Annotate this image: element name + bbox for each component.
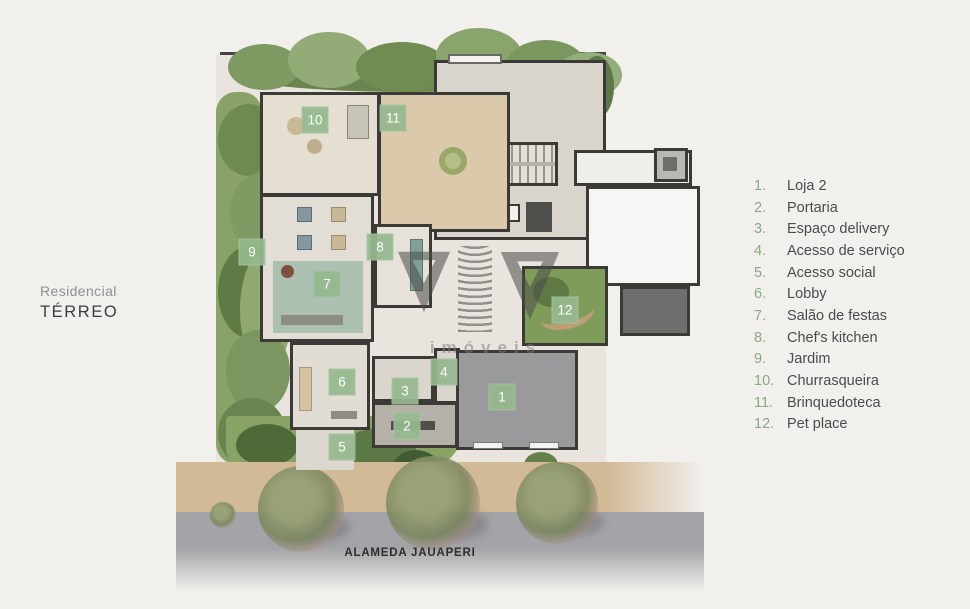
legend-number: 8. <box>754 328 779 350</box>
legend-item-2: 2.Portaria <box>754 198 905 220</box>
legend-label: Chef's kitchen <box>779 328 878 350</box>
legend-label: Churrasqueira <box>779 371 879 393</box>
legend-item-6: 6.Lobby <box>754 284 905 306</box>
watermark-stripe-mark <box>458 246 492 332</box>
elevator-right <box>654 148 688 182</box>
legend-label: Brinquedoteca <box>779 393 881 415</box>
plan-badge-11: 11 <box>380 105 407 132</box>
legend-label: Jardim <box>779 349 831 371</box>
legend-label: Loja 2 <box>779 176 827 198</box>
legend-label: Portaria <box>779 198 838 220</box>
legend-item-12: 12.Pet place <box>754 414 905 436</box>
legend-number: 12. <box>754 414 779 436</box>
legend-item-11: 11.Brinquedoteca <box>754 393 905 415</box>
plant-pot <box>281 265 294 278</box>
street-tree <box>516 462 598 544</box>
plan-badge-3: 3 <box>392 378 419 405</box>
legend-label: Lobby <box>779 284 827 306</box>
legend-number: 10. <box>754 371 779 393</box>
plan-badge-9: 9 <box>239 239 266 266</box>
legend-item-5: 5.Acesso social <box>754 263 905 285</box>
legend-label: Pet place <box>779 414 847 436</box>
legend-number: 11. <box>754 393 779 415</box>
grill-counter <box>347 105 369 139</box>
sofa <box>281 315 343 325</box>
plan-title: Residencial TÉRREO <box>40 283 118 322</box>
plan-badge-1: 1 <box>489 384 516 411</box>
storefront-door <box>529 442 559 449</box>
legend-number: 2. <box>754 198 779 220</box>
street-name-label: ALAMEDA JAUAPERI <box>295 547 525 559</box>
plan-badge-10: 10 <box>302 107 329 134</box>
sofa <box>299 367 312 411</box>
legend-number: 5. <box>754 263 779 285</box>
furniture-table <box>331 235 346 250</box>
furniture-table <box>297 207 312 222</box>
legend-label: Espaço delivery <box>779 219 889 241</box>
furniture-table <box>297 235 312 250</box>
room-dark-gray <box>620 286 690 336</box>
storefront-door <box>473 442 503 449</box>
legend-number: 4. <box>754 241 779 263</box>
vegetation-blob <box>236 424 298 466</box>
watermark-logo: imóveis <box>398 242 574 362</box>
legend-number: 6. <box>754 284 779 306</box>
street-tree <box>386 456 480 550</box>
watermark-letter-m-left <box>398 250 450 316</box>
plan-badge-2: 2 <box>394 413 421 440</box>
legend-item-1: 1.Loja 2 <box>754 176 905 198</box>
plan-badge-8: 8 <box>367 234 394 261</box>
room-loja-2 <box>456 350 578 450</box>
legend-item-9: 9.Jardim <box>754 349 905 371</box>
legend-label: Acesso social <box>779 263 876 285</box>
legend-number: 7. <box>754 306 779 328</box>
legend-number: 9. <box>754 349 779 371</box>
plan-badge-7: 7 <box>314 271 341 298</box>
round-rug-inner <box>445 153 461 169</box>
legend-item-3: 3.Espaço delivery <box>754 219 905 241</box>
plan-badge-4: 4 <box>431 359 458 386</box>
plan-badge-12: 12 <box>552 297 579 324</box>
furniture-table <box>331 207 346 222</box>
floorplan-marketing-image: { "title": {"line1": "Residencial", "lin… <box>0 0 970 609</box>
title-residencial: Residencial <box>40 283 118 299</box>
reception-bench <box>331 411 357 419</box>
elevator-cab <box>663 157 677 171</box>
legend-number: 1. <box>754 176 779 198</box>
title-terreo: TÉRREO <box>40 303 118 322</box>
elevator-shaft <box>526 202 552 232</box>
furniture-table <box>307 139 322 154</box>
legend-item-7: 7.Salão de festas <box>754 306 905 328</box>
legend-label: Acesso de serviço <box>779 241 905 263</box>
legend-item-4: 4.Acesso de serviço <box>754 241 905 263</box>
plan-badge-6: 6 <box>329 369 356 396</box>
street-tree <box>258 466 344 552</box>
legend-item-10: 10.Churrasqueira <box>754 371 905 393</box>
street-shrub <box>210 502 236 528</box>
legend-number: 3. <box>754 219 779 241</box>
legend-item-8: 8.Chef's kitchen <box>754 328 905 350</box>
legend-label: Salão de festas <box>779 306 887 328</box>
plan-badge-5: 5 <box>329 434 356 461</box>
watermark-text: imóveis <box>398 338 574 358</box>
room-salao-de-festas <box>260 194 374 342</box>
entrance-gate-mark <box>448 54 502 64</box>
legend: 1.Loja 2 2.Portaria 3.Espaço delivery 4.… <box>754 176 905 436</box>
